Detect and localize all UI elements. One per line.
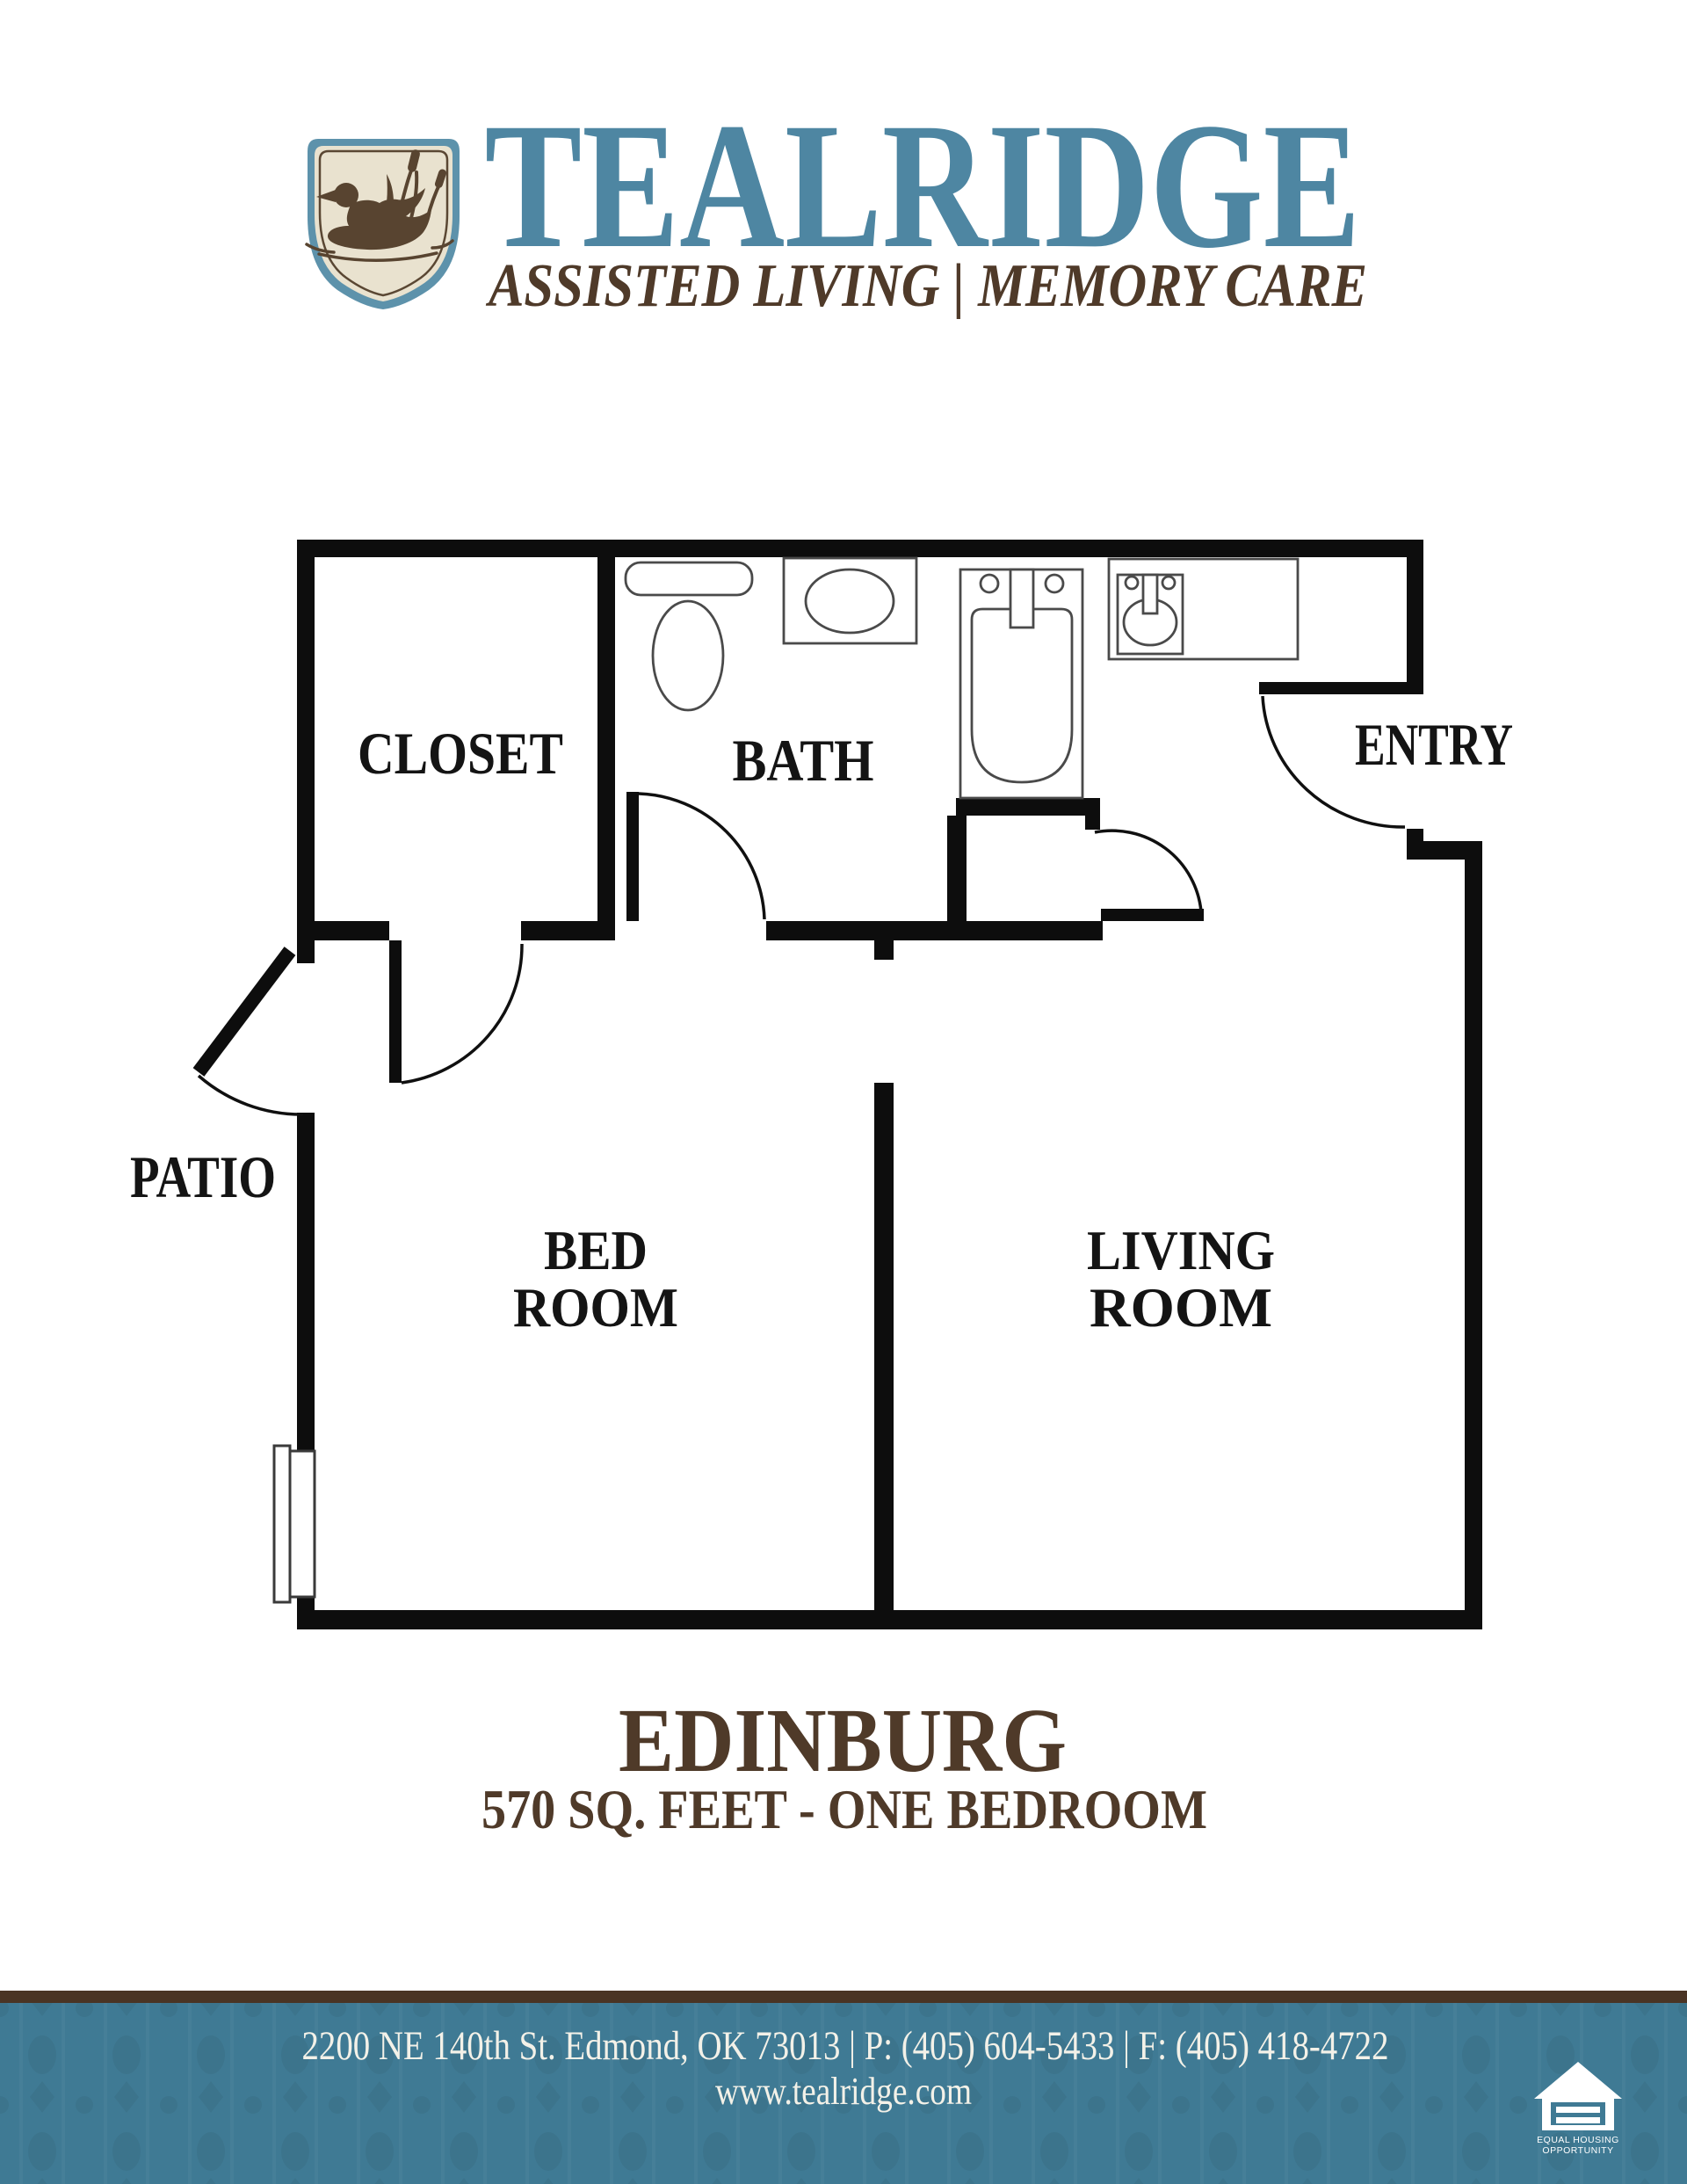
room-labels: CLOSET BATH ENTRY PATIO BED ROOM LIVING … bbox=[130, 711, 1513, 1339]
wall-divider-stub bbox=[874, 940, 894, 960]
bathtub-fixture bbox=[960, 570, 1082, 798]
footer-website[interactable]: www.tealridge.com bbox=[715, 2070, 972, 2113]
bedroom-door-leaf bbox=[389, 940, 402, 1083]
footer: 2200 NE 140th St. Edmond, OK 73013 | P: … bbox=[0, 1991, 1687, 2184]
hall-door-leaf bbox=[1101, 909, 1204, 921]
room-label-bedroom-line1: BED bbox=[544, 1219, 648, 1281]
room-label-bath: BATH bbox=[733, 727, 874, 794]
duck-shield-icon bbox=[307, 139, 460, 309]
room-label-entry: ENTRY bbox=[1355, 711, 1513, 778]
flyer-page: TEALRIDGE ASSISTED LIVING | MEMORY CARE bbox=[0, 0, 1687, 2184]
bath-door-leaf bbox=[626, 792, 639, 921]
wall-bottom bbox=[297, 1610, 1482, 1629]
window-fixture bbox=[274, 1446, 315, 1602]
wall-tub bbox=[956, 798, 1100, 816]
footer-accent-bar bbox=[0, 1991, 1687, 2003]
brand-tagline: ASSISTED LIVING | MEMORY CARE bbox=[486, 252, 1367, 320]
wall-divider-main bbox=[874, 1083, 894, 1610]
wall-jog bbox=[947, 816, 967, 921]
unit-specs: 570 SQ. FEET - ONE BEDROOM bbox=[481, 1779, 1207, 1840]
wall-closet-bottom-b bbox=[521, 921, 615, 940]
equal-housing-caption-line1: EQUAL HOUSING bbox=[1537, 2135, 1619, 2145]
wall-closet-bottom-a bbox=[315, 921, 389, 940]
brand-header: TEALRIDGE ASSISTED LIVING | MEMORY CARE bbox=[307, 86, 1367, 320]
bedroom-door-arc bbox=[402, 944, 522, 1083]
toilet-fixture bbox=[626, 562, 752, 710]
wall-left-bedroom bbox=[297, 1113, 315, 1450]
flyer-canvas: TEALRIDGE ASSISTED LIVING | MEMORY CARE bbox=[0, 0, 1687, 2184]
room-label-closet: CLOSET bbox=[358, 720, 563, 787]
patio-door-arc bbox=[199, 1076, 303, 1114]
wall-hall-door-stub bbox=[1085, 798, 1100, 830]
patio-door-leaf bbox=[199, 951, 290, 1072]
wall-right-living bbox=[1465, 841, 1482, 1629]
wall-right-entry-stub bbox=[1407, 829, 1423, 860]
walls bbox=[297, 540, 1482, 1629]
wall-left-closet bbox=[297, 540, 315, 963]
wall-closet-right bbox=[597, 557, 615, 940]
entry-vanity-fixture bbox=[1109, 559, 1298, 659]
entry-door-leaf bbox=[1259, 682, 1407, 694]
wall-hall-south bbox=[766, 921, 1103, 940]
room-label-patio: PATIO bbox=[130, 1143, 276, 1210]
wall-top bbox=[297, 540, 1423, 557]
room-label-bedroom-line2: ROOM bbox=[513, 1276, 678, 1339]
room-label-living-line1: LIVING bbox=[1087, 1219, 1275, 1281]
unit-name: EDINBURG bbox=[619, 1690, 1067, 1791]
equal-housing-caption-line2: OPPORTUNITY bbox=[1542, 2145, 1613, 2156]
room-label-living-line2: ROOM bbox=[1090, 1276, 1272, 1339]
fixtures bbox=[274, 558, 1298, 1602]
hall-door-arc bbox=[1095, 831, 1201, 911]
wall-right-entry-upper bbox=[1407, 557, 1423, 694]
bath-sink-fixture bbox=[784, 558, 916, 643]
unit-title-block: EDINBURG 570 SQ. FEET - ONE BEDROOM bbox=[481, 1690, 1207, 1840]
footer-contact: 2200 NE 140th St. Edmond, OK 73013 | P: … bbox=[302, 2023, 1389, 2069]
floor-plan-diagram: CLOSET BATH ENTRY PATIO BED ROOM LIVING … bbox=[130, 540, 1513, 1629]
bath-door-arc bbox=[639, 794, 764, 919]
